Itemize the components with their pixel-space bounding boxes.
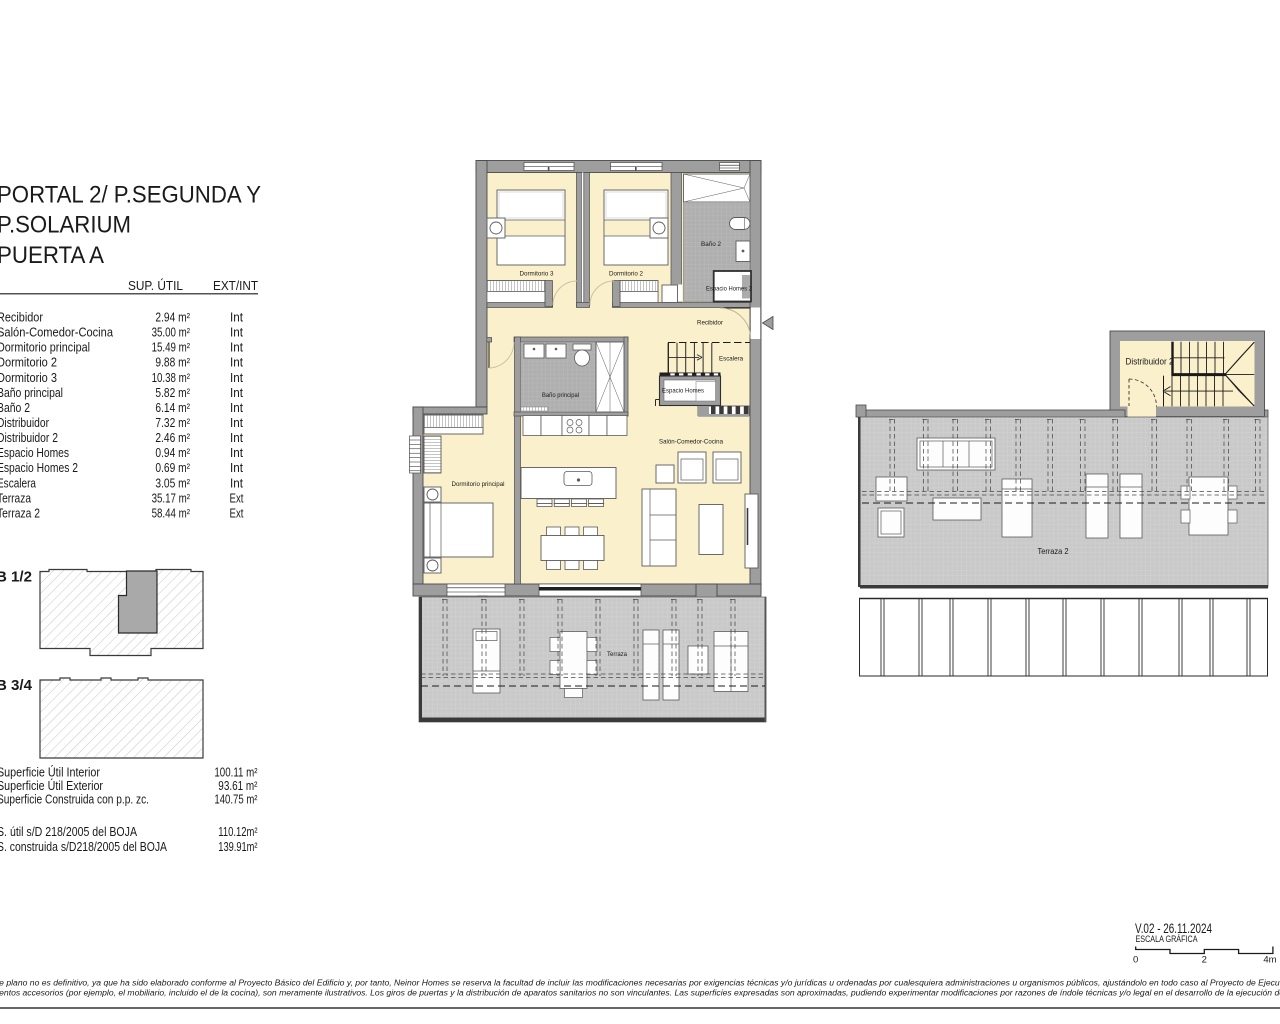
svg-text:PORTAL 2/ P.SEGUNDA Y: PORTAL 2/ P.SEGUNDA Y — [0, 181, 261, 208]
svg-text:Terraza: Terraza — [0, 490, 32, 505]
svg-text:0.94 m²: 0.94 m² — [155, 445, 190, 460]
svg-text:Ext: Ext — [230, 490, 244, 505]
svg-text:Recibidor: Recibidor — [0, 310, 44, 325]
svg-text:0.69 m²: 0.69 m² — [155, 460, 190, 475]
svg-text:S. construida s/D218/2005 del: S. construida s/D218/2005 del BOJA — [0, 839, 167, 854]
svg-text:Int: Int — [230, 430, 243, 445]
svg-text:Recibidor: Recibidor — [697, 320, 724, 327]
svg-text:P.SOLARIUM: P.SOLARIUM — [0, 212, 131, 239]
svg-text:2.46 m²: 2.46 m² — [155, 430, 190, 445]
svg-text:Terraza: Terraza — [607, 651, 627, 658]
svg-text:Dormitorio 2: Dormitorio 2 — [0, 355, 57, 370]
svg-text:139.91m²: 139.91m² — [218, 839, 258, 854]
svg-text:Int: Int — [230, 355, 243, 370]
svg-text:58.44 m²: 58.44 m² — [152, 505, 191, 520]
svg-text:Dormitorio principal: Dormitorio principal — [452, 481, 506, 488]
svg-text:Salón-Comedor-Cocina: Salón-Comedor-Cocina — [659, 439, 723, 446]
svg-text:0: 0 — [1133, 955, 1138, 966]
svg-text:EXT/INT: EXT/INT — [213, 279, 258, 293]
svg-text:Ext: Ext — [230, 505, 244, 520]
svg-text:Int: Int — [230, 445, 243, 460]
svg-text:Int: Int — [230, 415, 243, 430]
svg-text:Terraza 2: Terraza 2 — [0, 505, 40, 520]
svg-text:Int: Int — [230, 310, 243, 325]
svg-text:7.32 m²: 7.32 m² — [155, 415, 190, 430]
svg-text:Superficie Construida con p.p.: Superficie Construida con p.p. zc. — [0, 792, 149, 807]
svg-text:Espacio Homes: Espacio Homes — [662, 388, 704, 395]
svg-text:10.38 m²: 10.38 m² — [152, 370, 191, 385]
svg-text:2: 2 — [1202, 955, 1207, 966]
svg-text:Distribuidor 2: Distribuidor 2 — [1126, 357, 1174, 367]
svg-text:Distribuidor 2: Distribuidor 2 — [0, 430, 58, 445]
svg-text:Espacio Homes: Espacio Homes — [0, 445, 69, 460]
svg-text:Escalera: Escalera — [719, 356, 743, 363]
svg-text:Baño 2: Baño 2 — [701, 241, 721, 248]
svg-text:2.94 m²: 2.94 m² — [155, 310, 190, 325]
svg-text:Espacio Homes 2: Espacio Homes 2 — [0, 460, 78, 475]
svg-text:Int: Int — [230, 475, 243, 490]
svg-text:B 3/4: B 3/4 — [0, 677, 33, 694]
svg-text:SUP. ÚTIL: SUP. ÚTIL — [128, 278, 183, 293]
svg-text:15.49 m²: 15.49 m² — [152, 340, 191, 355]
svg-text:Espacio Homes 2: Espacio Homes 2 — [706, 286, 753, 293]
svg-text:Dormitorio 2: Dormitorio 2 — [609, 271, 643, 278]
svg-text:Salón-Comedor-Cocina: Salón-Comedor-Cocina — [0, 325, 114, 340]
svg-text:Int: Int — [230, 325, 243, 340]
svg-text:Terraza 2: Terraza 2 — [1038, 547, 1070, 556]
svg-text:5.82 m²: 5.82 m² — [155, 385, 190, 400]
svg-text:B 1/2: B 1/2 — [0, 569, 32, 586]
svg-text:Baño 2: Baño 2 — [0, 400, 30, 415]
svg-text:Int: Int — [230, 370, 243, 385]
svg-text:Dormitorio principal: Dormitorio principal — [0, 340, 90, 355]
svg-text:35.00 m²: 35.00 m² — [152, 325, 191, 340]
svg-text:S. útil s/D 218/2005 del BOJA: S. útil s/D 218/2005 del BOJA — [0, 824, 137, 839]
svg-text:Dormitorio 3: Dormitorio 3 — [520, 271, 554, 278]
svg-text:6.14 m²: 6.14 m² — [155, 400, 190, 415]
svg-text:Distribuidor: Distribuidor — [0, 415, 50, 430]
svg-text:Baño principal: Baño principal — [542, 392, 579, 399]
svg-text:mentos accesorios (por ejemplo: mentos accesorios (por ejemplo, el mobil… — [0, 988, 1280, 998]
svg-text:Int: Int — [230, 460, 243, 475]
svg-text:35.17 m²: 35.17 m² — [152, 490, 191, 505]
svg-text:140.75 m²: 140.75 m² — [214, 792, 258, 807]
svg-text:110.12m²: 110.12m² — [218, 824, 258, 839]
svg-text:PUERTA A: PUERTA A — [0, 242, 105, 269]
svg-text:Int: Int — [230, 340, 243, 355]
svg-text:9.88 m²: 9.88 m² — [155, 355, 190, 370]
svg-text:Baño principal: Baño principal — [0, 385, 63, 400]
svg-text:4m: 4m — [1263, 955, 1276, 966]
svg-text:ESCALA GRÁFICA: ESCALA GRÁFICA — [1136, 934, 1198, 944]
svg-text:Int: Int — [230, 400, 243, 415]
svg-text:3.05 m²: 3.05 m² — [155, 475, 190, 490]
svg-text:Escalera: Escalera — [0, 475, 37, 490]
svg-text:Int: Int — [230, 385, 243, 400]
svg-text:Dormitorio 3: Dormitorio 3 — [0, 370, 57, 385]
svg-text:nte plano no es definitivo, ya: nte plano no es definitivo, ya que ha si… — [0, 978, 1280, 988]
